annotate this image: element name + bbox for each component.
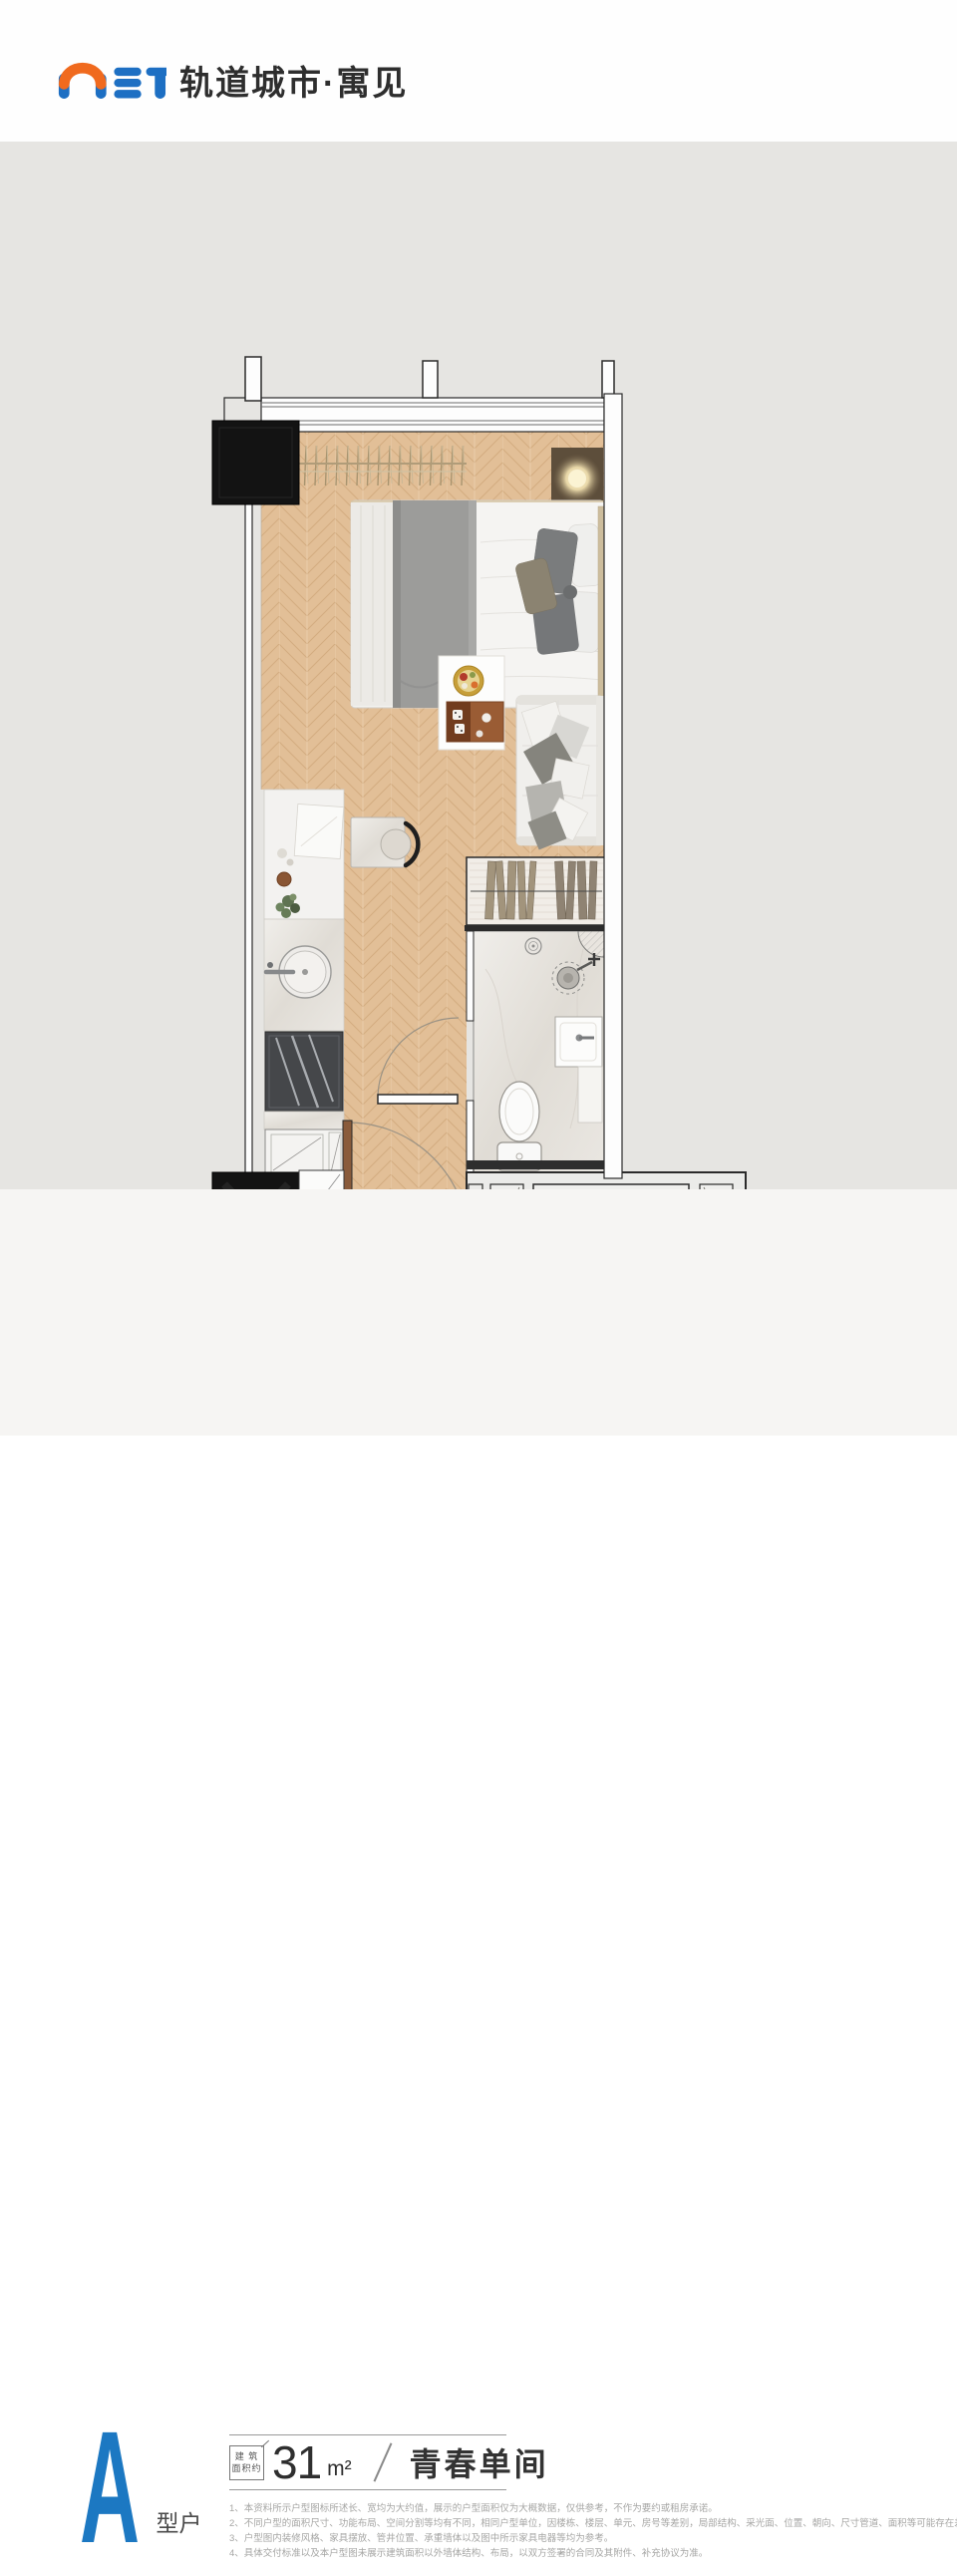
folded-sheet bbox=[351, 502, 395, 706]
disclaimer-list: 1、本资料所示户型图标所述长、宽均为大约值，展示的户型面积仅为大概数据，仅供参考… bbox=[229, 2501, 957, 2561]
food-tray bbox=[447, 702, 503, 742]
unit-info: A 户型 建 筑 面积约 31 m² 青春单间 1、本资料所示户型图标所述长、宽… bbox=[0, 1189, 957, 1436]
disclaimer-line: 4、具体交付标准以及本户型图未展示建筑面积以外墙体结构、布局，以双方签署的合同及… bbox=[229, 2546, 957, 2561]
met-logo-mark bbox=[59, 68, 166, 99]
floorplan bbox=[199, 351, 758, 1283]
side-table bbox=[439, 656, 504, 750]
area-tag: 建 筑 面积约 bbox=[229, 2445, 264, 2480]
chair-seat bbox=[381, 829, 411, 859]
wall-stub-right bbox=[602, 361, 614, 398]
area-unit: m² bbox=[327, 2457, 352, 2481]
logo-arc bbox=[64, 68, 101, 84]
food-plate bbox=[454, 666, 483, 696]
unit-name: 青春单间 bbox=[410, 2439, 549, 2485]
wall-stub-mid bbox=[423, 361, 438, 398]
area-value: 31 bbox=[272, 2435, 321, 2489]
vanity-sink bbox=[555, 1017, 602, 1067]
disclaimer-line: 3、户型图内装修风格、家具摆放、管井位置、承重墙体以及图中所示家具电器等均为参考… bbox=[229, 2531, 957, 2546]
plan-board bbox=[0, 142, 957, 1189]
sofa bbox=[516, 696, 604, 850]
area-row: 建 筑 面积约 31 m² 青春单间 bbox=[229, 2434, 506, 2490]
bathroom-wall-left-upper bbox=[467, 931, 474, 1021]
vanity-ledge bbox=[578, 1067, 602, 1123]
structural-shaft-top bbox=[212, 421, 299, 504]
disclaimer-line: 2、不同户型的面积尺寸、功能布局、空间分割等均有不同，相同户型单位，因楼栋、楼层… bbox=[229, 2516, 957, 2531]
bathroom bbox=[467, 931, 604, 1178]
slash-divider bbox=[373, 2442, 392, 2481]
counter-strip bbox=[264, 1112, 344, 1129]
header: 轨道城市·寓见 bbox=[0, 0, 957, 142]
bathroom-bottom-wall bbox=[467, 1160, 606, 1169]
met-logo bbox=[55, 54, 166, 103]
closet-bottom-wall bbox=[465, 925, 608, 931]
unit-letter: A bbox=[80, 2408, 140, 2567]
cutting-board bbox=[294, 804, 344, 858]
cooktop bbox=[265, 1032, 343, 1112]
wall-stub-left bbox=[245, 357, 261, 401]
unit-type-label: 户型 bbox=[154, 2511, 199, 2541]
bowl bbox=[277, 872, 291, 886]
disclaimer-line: 1、本资料所示户型图标所述长、宽均为大约值，展示的户型面积仅为大概数据，仅供参考… bbox=[229, 2501, 957, 2516]
floor-drain bbox=[525, 938, 541, 954]
plate-small bbox=[287, 859, 294, 866]
toilet bbox=[497, 1082, 541, 1170]
plate bbox=[277, 848, 287, 858]
laundry-closet bbox=[467, 857, 606, 925]
left-wall bbox=[245, 503, 252, 1173]
area-tag-line1: 建 筑 bbox=[230, 2450, 263, 2462]
bathroom-door bbox=[378, 1095, 458, 1104]
wardrobe-hanger-rack bbox=[299, 444, 467, 488]
kitchen bbox=[264, 790, 344, 1177]
brand-text: 轨道城市·寓见 bbox=[179, 56, 408, 105]
right-wall bbox=[604, 394, 622, 1178]
area-tag-line2: 面积约 bbox=[230, 2462, 263, 2474]
